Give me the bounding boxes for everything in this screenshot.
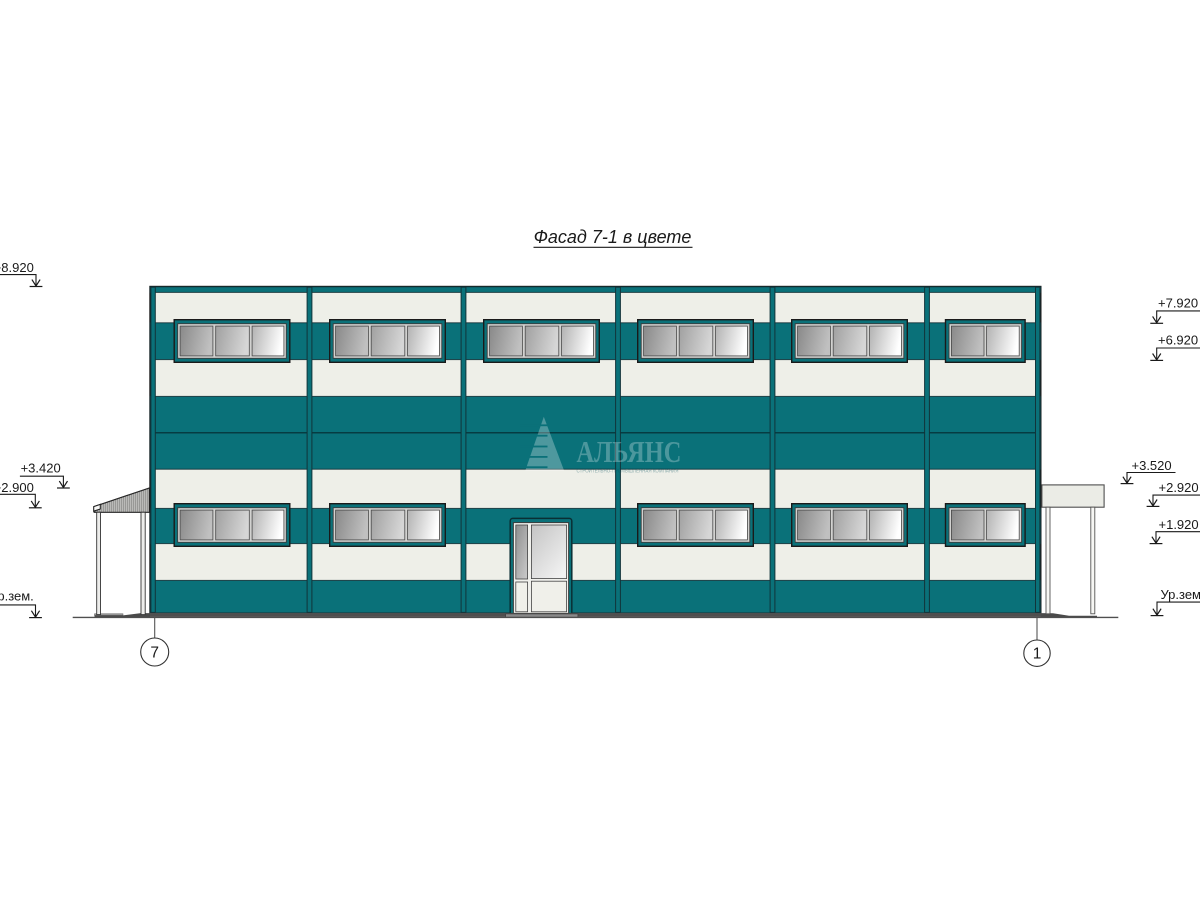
svg-text:1: 1 xyxy=(1033,646,1042,663)
svg-text:+2.920: +2.920 xyxy=(1159,480,1199,495)
svg-text:+3.420: +3.420 xyxy=(21,460,61,475)
svg-text:+1.920: +1.920 xyxy=(1159,517,1199,532)
svg-text:+8.920: +8.920 xyxy=(0,260,34,275)
svg-text:+2.900: +2.900 xyxy=(0,480,34,495)
svg-text:АЛЬЯНС: АЛЬЯНС xyxy=(577,434,682,469)
svg-text:+3.520: +3.520 xyxy=(1132,458,1172,473)
svg-text:СТРОИТЕЛЬНО-ПРОМЫШЛЕННАЯ КОМПА: СТРОИТЕЛЬНО-ПРОМЫШЛЕННАЯ КОМПАНИЯ xyxy=(577,468,679,474)
svg-text:Ур.зем.: Ур.зем. xyxy=(0,589,34,604)
svg-text:+7.920: +7.920 xyxy=(1158,296,1198,311)
svg-text:Фасад 7-1 в цвете: Фасад 7-1 в цвете xyxy=(534,227,692,247)
svg-text:+6.920: +6.920 xyxy=(1158,332,1198,347)
svg-text:Ур.зем.: Ур.зем. xyxy=(1161,587,1200,602)
svg-text:7: 7 xyxy=(150,644,159,661)
